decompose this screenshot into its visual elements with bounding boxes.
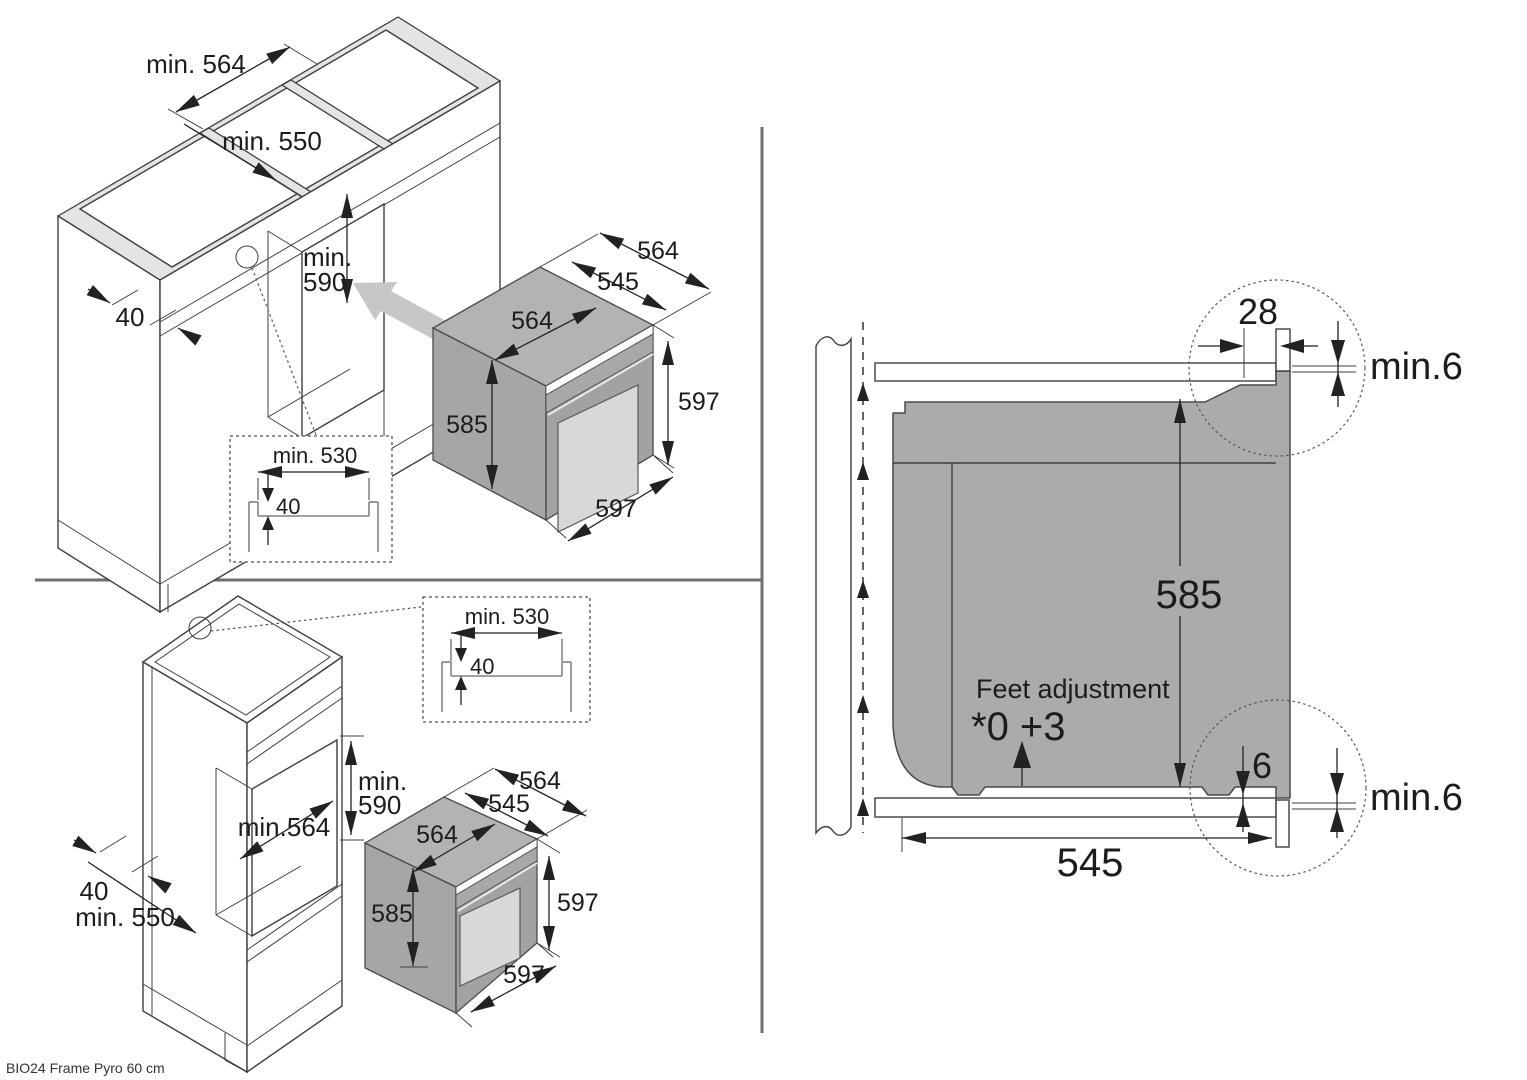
base-inset-recess-label: 40: [276, 494, 300, 519]
base-oven-depth-body-label: 545: [597, 268, 639, 296]
bottom-shelf: [875, 798, 1276, 817]
bottom-gap-min-label: min.6: [1370, 777, 1463, 819]
feet-adjustment-values: *0 +3: [971, 705, 1066, 749]
front-frame-top-lip: [1276, 329, 1290, 371]
feet-adjustment-label: Feet adjustment: [976, 674, 1170, 704]
tall-oven-width-top-label: 564: [416, 821, 458, 849]
section-oven-height-label: 585: [1156, 573, 1223, 617]
front-frame-bottom-lip: [1276, 800, 1289, 847]
base-niche-width-label: min. 564: [146, 49, 246, 79]
bottom-gap-label: 6: [1252, 745, 1272, 786]
tall-oven-depth-body-label: 545: [488, 790, 530, 818]
tall-inset-width-label: min. 530: [465, 604, 549, 629]
section-oven-depth-label: 545: [1057, 841, 1124, 885]
tall-oven-width-front-label: 597: [503, 961, 545, 989]
countertop: [875, 363, 1276, 381]
tall-plinth-detail-inset: min. 530 40: [423, 597, 590, 722]
tall-inset-recess-label: 40: [470, 654, 494, 679]
base-niche-depth-label: min. 550: [222, 126, 322, 156]
tall-oven-height-body-label: 585: [371, 900, 413, 928]
base-oven-width-top-label: 564: [511, 307, 553, 335]
wall-cross-section: [816, 337, 851, 835]
base-oven-height-front-label: 597: [678, 388, 720, 416]
base-niche-height-label-2: 590: [303, 267, 346, 297]
top-overhang-label: 28: [1238, 291, 1278, 332]
tall-cabinet-side-panel: [143, 662, 247, 1072]
tall-oven-height-front-label: 597: [557, 889, 599, 917]
base-cabinet-diagram: min. 564 min. 550 min. 590 40 min. 530: [58, 17, 720, 612]
base-oven-depth-total-label: 564: [637, 237, 679, 265]
tall-niche-height-label-2: 590: [358, 790, 401, 820]
base-oven-height-body-label: 585: [446, 411, 488, 439]
base-plinth-offset-label: 40: [116, 302, 145, 332]
vertical-reference-line: [857, 322, 869, 833]
tall-niche-depth-label: min. 550: [75, 902, 175, 932]
diagram-canvas: min. 564 min. 550 min. 590 40 min. 530: [0, 0, 1527, 1080]
top-gap-label: min.6: [1370, 346, 1463, 388]
installation-diagram-page: min. 564 min. 550 min. 590 40 min. 530: [0, 0, 1527, 1080]
base-inset-width-label: min. 530: [273, 443, 357, 468]
footer-model-label: BIO24 Frame Pyro 60 cm: [6, 1060, 165, 1076]
base-plinth-detail-inset: min. 530 40: [230, 436, 392, 562]
tall-cabinet-diagram: min. 530 40 min. 590 min.564: [74, 596, 599, 1072]
cabinet-side-panel: [58, 216, 160, 612]
side-section-diagram: 585 Feet adjustment *0 +3 28 min.6: [816, 280, 1463, 885]
tall-niche-width-label: min.564: [238, 812, 331, 842]
base-oven-width-front-label: 597: [595, 495, 637, 523]
